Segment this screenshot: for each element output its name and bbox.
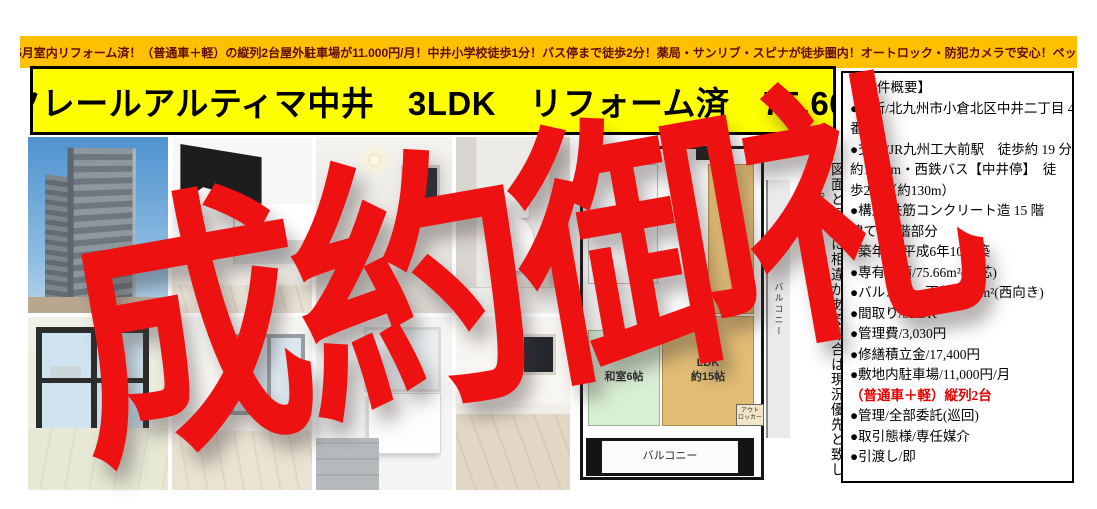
photo-western-room — [172, 317, 312, 490]
washroom-tile-floor — [316, 438, 379, 490]
kitchen-floor — [172, 285, 312, 313]
plan-wall-block — [696, 146, 730, 160]
panel-line-structure1: ●構造/鉄筋コンクリート造 15 階 — [850, 201, 1065, 222]
panel-line-address1: ●住所/北九州市小倉北区中井二丁目 4 — [850, 99, 1065, 120]
ceiling-light — [368, 153, 382, 167]
plan-ldk-label2: 約15帖 — [691, 371, 725, 385]
panel-line-parking-note: （普通車＋軽）縦列2台 — [850, 386, 1065, 407]
panel-line-built: ●築年月/平成6年10月築 — [850, 242, 1065, 263]
panel-line-address2: 番1 — [850, 119, 1065, 140]
plan-wall-block — [586, 146, 616, 160]
kitchen-counter — [233, 204, 312, 264]
panel-line-transaction: ●取引態様/専任媒介 — [850, 427, 1065, 448]
property-title: エクレールアルティマ中井 3LDK リフォーム済 75.66 ㎡ — [30, 77, 836, 125]
panel-line-parking: ●敷地内駐車場/11,000円/月 — [850, 365, 1065, 386]
floor-plan: 和室6帖 LDK 約15帖 アウト ロッカー バルコニー バルコニー — [576, 138, 792, 486]
photo-hallway — [316, 137, 452, 313]
panel-line-handover: ●引渡し/即 — [850, 447, 1065, 468]
panel-line-balcony-area: ●バルコニー面積/9.12m²(西向き) — [850, 283, 1065, 304]
top-banner-text: 令和7年5月室内リフォーム済！（普通車＋軽）の縦列2台屋外駐車場が11.000円… — [20, 44, 1077, 61]
photo-wood-floor-room — [456, 317, 570, 490]
panel-line-repair-fund: ●修繕積立金/17,400円 — [850, 345, 1065, 366]
plan-balcony-right: バルコニー — [766, 180, 790, 438]
plan-room-upper — [708, 164, 754, 314]
plan-balcony-bottom-label: バルコニー — [643, 450, 698, 464]
japanese-room-window — [36, 327, 149, 436]
photo-japanese-room — [28, 317, 168, 490]
panel-line-management: ●管理/全部委託(巡回) — [850, 406, 1065, 427]
toilet-floor — [456, 287, 570, 313]
toilet-tank — [499, 190, 529, 218]
panel-line-access3: 歩2分（約130m） — [850, 181, 1065, 202]
property-details-panel: 【物件概要】 ●住所/北九州市小倉北区中井二丁目 4 番1 ●交通/JR九州工大… — [841, 71, 1074, 483]
plan-balcony-right-label: バルコニー — [773, 282, 786, 337]
plan-locker-label1: アウト — [741, 408, 759, 415]
washroom-mirror — [364, 327, 441, 392]
photo-washroom — [316, 317, 452, 490]
western-room-floor — [172, 431, 312, 490]
disclaimer-vertical-text: 図面と現況に相違がある場合は現況優先と致します。 — [806, 162, 846, 478]
hallway-window — [401, 165, 440, 217]
panel-line-area: ●専有面積/75.66m²(壁芯) — [850, 263, 1065, 284]
toilet-bowl — [495, 218, 534, 271]
building-tower-secondary — [45, 174, 70, 301]
panel-line-access1: ●交通/JR九州工大前駅 徒歩約 19 分 — [850, 140, 1065, 161]
tatami-floor — [28, 428, 168, 490]
plan-washitsu: 和室6帖 — [588, 330, 660, 426]
photo-kitchen — [172, 137, 312, 313]
wood-room-floor — [456, 414, 570, 490]
range-hood — [180, 144, 261, 204]
wood-room-window — [521, 334, 557, 375]
city-view — [50, 366, 80, 378]
panel-line-structure2: 建ての3階部分 — [850, 222, 1065, 243]
balcony-wall-cap — [738, 438, 754, 476]
panel-line-mgmt-fee: ●管理費/3,030円 — [850, 324, 1065, 345]
top-banner: 令和7年5月室内リフォーム済！（普通車＋軽）の縦列2台屋外駐車場が11.000円… — [20, 36, 1077, 68]
western-room-window — [230, 334, 305, 415]
building-tower — [68, 147, 136, 308]
balcony-wall-cap — [586, 438, 602, 476]
plan-locker-label2: ロッカー — [738, 415, 762, 422]
panel-line-layout: ●間取り/3LDK — [850, 304, 1065, 325]
building-ground — [28, 297, 168, 313]
plan-washitsu-label: 和室6帖 — [604, 371, 643, 385]
plan-out-locker: アウト ロッカー — [736, 404, 764, 426]
plan-room-west — [588, 164, 658, 284]
photo-building-exterior — [28, 137, 168, 313]
plan-balcony-bottom: バルコニー — [586, 438, 754, 476]
panel-heading: 【物件概要】 — [850, 78, 1065, 99]
property-title-bar: エクレールアルティマ中井 3LDK リフォーム済 75.66 ㎡ — [30, 66, 836, 135]
photo-toilet — [456, 137, 570, 313]
washroom-vanity — [368, 393, 441, 454]
plan-ldk-label1: LDK — [697, 357, 720, 371]
panel-line-access2: 約1500m・西鉄バス【中井停】 徒 — [850, 160, 1065, 181]
